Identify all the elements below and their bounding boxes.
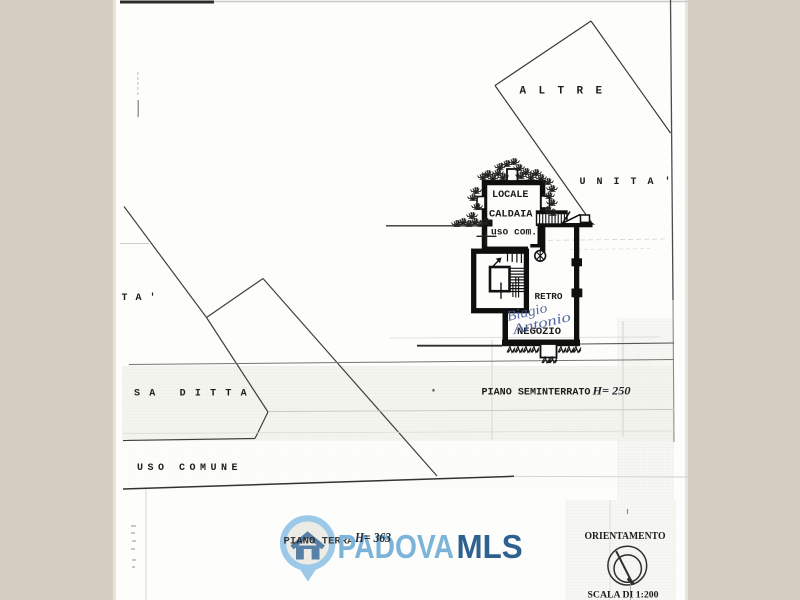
svg-text:SA DITTA: SA DITTA [134,389,256,400]
svg-text:TA': TA' [122,292,164,304]
svg-text:SCALA DI 1:200: SCALA DI 1:200 [588,590,659,600]
svg-text:UNITA': UNITA' [580,176,682,188]
svg-text:PIANO SEMINTERRATO: PIANO SEMINTERRATO [482,388,591,399]
svg-text:CALDAIA: CALDAIA [489,210,533,221]
svg-text:uso com.: uso com. [491,227,537,238]
svg-text:RETRO: RETRO [535,291,563,302]
svg-text:ORIENTAMENTO: ORIENTAMENTO [585,531,666,542]
svg-text:H= 363: H= 363 [354,531,391,546]
svg-text:USO COMUNE: USO COMUNE [137,463,242,474]
svg-text:ALTRE: ALTRE [520,86,615,98]
svg-text:MLS: MLS [457,528,523,565]
svg-text:LOCALE: LOCALE [492,190,529,201]
svg-text:H= 250: H= 250 [591,384,630,398]
